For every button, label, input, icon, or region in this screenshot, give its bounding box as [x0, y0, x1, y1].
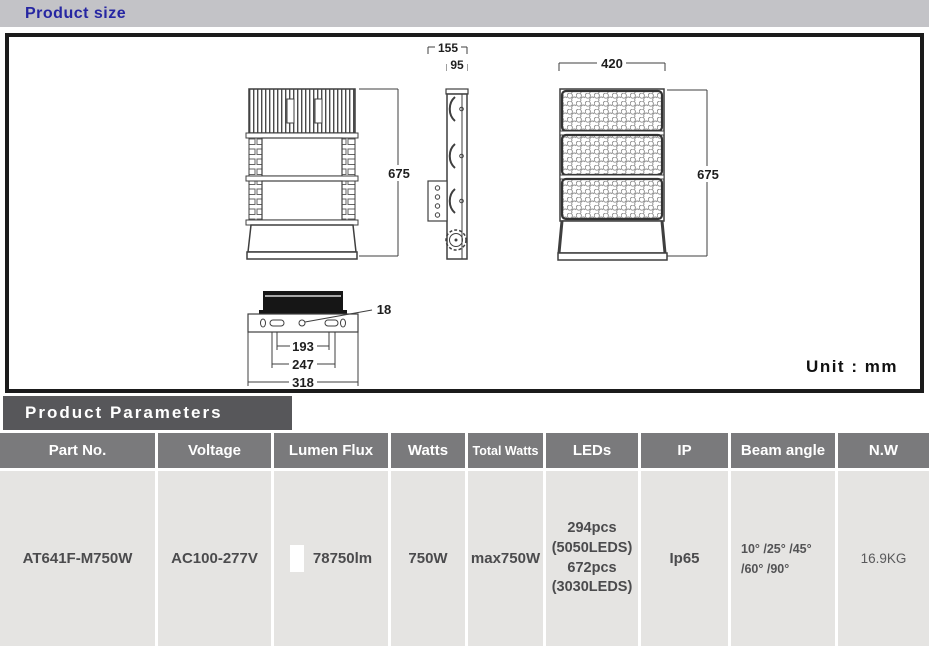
dim-front-width: 420: [601, 56, 623, 71]
lumen-flux-value: 78750lm: [313, 550, 372, 567]
product-size-drawing-frame: 675 155 95 420: [5, 33, 924, 393]
header-beam-angle: Beam angle: [731, 433, 838, 468]
dim-side-body-width: 95: [450, 58, 464, 72]
header-ip: IP: [641, 433, 731, 468]
drawing-back-view: 675: [246, 89, 413, 259]
leds-line-2: (5050LEDS): [552, 539, 633, 559]
dim-bottom-outer: 318: [292, 375, 314, 389]
header-watts: Watts: [391, 433, 468, 468]
table-data-row: AT641F-M750W AC100-277V 78750lm 750W max…: [0, 471, 929, 646]
drawing-front-view: 420 675: [558, 56, 721, 260]
cell-total-watts: max750W: [468, 471, 546, 646]
dim-bottom-hole: 18: [377, 302, 391, 317]
dim-front-height: 675: [697, 167, 719, 182]
dim-bottom-inner: 193: [292, 339, 314, 354]
dim-back-height: 675: [388, 166, 410, 181]
beam-angle-line-2: /60° /90°: [741, 559, 789, 579]
product-parameters-section-bar: Product Parameters: [3, 396, 292, 430]
dim-side-overall-width: 155: [438, 41, 458, 55]
table-header-row: Part No. Voltage Lumen Flux Watts Total …: [0, 433, 929, 468]
cell-leds: 294pcs (5050LEDS) 672pcs (3030LEDS): [546, 471, 641, 646]
white-color-swatch: [290, 545, 304, 572]
header-lumen-flux: Lumen Flux: [274, 433, 391, 468]
cell-watts: 750W: [391, 471, 468, 646]
product-size-title: Product size: [25, 5, 126, 23]
leds-line-3: 672pcs: [567, 559, 616, 579]
header-net-weight: N.W: [838, 433, 929, 468]
dim-bottom-middle: 247: [292, 357, 314, 372]
product-size-section-bar: Product size: [0, 0, 929, 27]
drawing-bottom-view: 18 193 247 318: [248, 291, 391, 389]
leds-line-4: (3030LEDS): [552, 578, 633, 598]
cell-beam-angle: 10° /25° /45° /60° /90°: [731, 471, 838, 646]
cell-ip: Ip65: [641, 471, 731, 646]
header-leds: LEDs: [546, 433, 641, 468]
header-voltage: Voltage: [158, 433, 274, 468]
header-part-no: Part No.: [0, 433, 158, 468]
leds-line-1: 294pcs: [567, 519, 616, 539]
cell-net-weight: 16.9KG: [838, 471, 929, 646]
unit-label: Unit : mm: [806, 357, 898, 376]
product-size-drawing: 675 155 95 420: [9, 37, 920, 389]
beam-angle-line-1: 10° /25° /45°: [741, 539, 812, 559]
product-parameters-table: Part No. Voltage Lumen Flux Watts Total …: [0, 433, 929, 646]
drawing-side-view: 155 95: [428, 40, 468, 259]
cell-part-no: AT641F-M750W: [0, 471, 158, 646]
cell-voltage: AC100-277V: [158, 471, 274, 646]
product-parameters-title: Product Parameters: [25, 403, 223, 423]
header-total-watts: Total Watts: [468, 433, 546, 468]
cell-lumen-flux: 78750lm: [274, 471, 391, 646]
